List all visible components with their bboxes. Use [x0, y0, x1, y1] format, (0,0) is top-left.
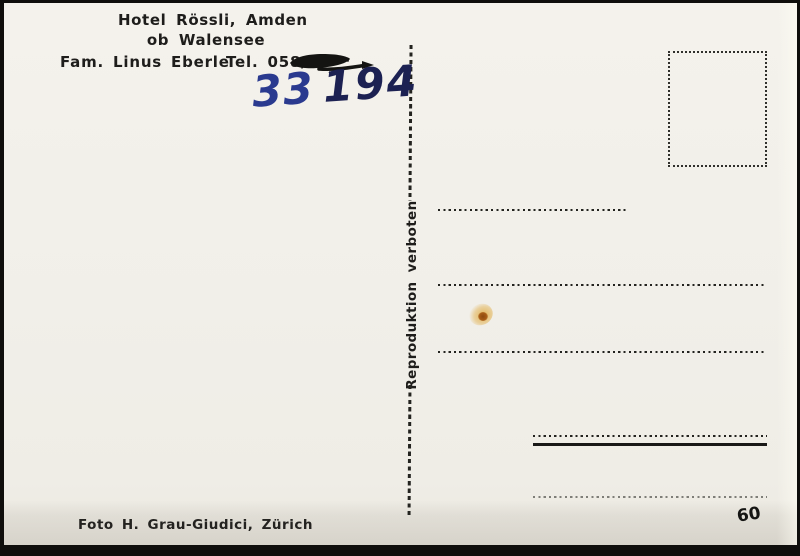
reproduction-forbidden-notice: Reproduktion verboten — [404, 200, 420, 389]
photo-credit: Foto H. Grau-Giudici, Zürich — [78, 517, 313, 533]
address-line-3 — [438, 351, 766, 353]
message-line-dotted-faded — [533, 496, 767, 498]
stamp-box — [668, 51, 767, 167]
family-name: Fam. Linus Eberle — [60, 53, 230, 71]
message-line-solid — [533, 443, 767, 446]
address-line-1 — [438, 209, 628, 211]
card-number: 60 — [736, 503, 763, 526]
address-line-2 — [438, 284, 766, 286]
message-line-dotted — [533, 435, 767, 437]
hotel-location: ob Walensee — [118, 31, 294, 49]
handwritten-digits-blue: 33 — [250, 64, 315, 118]
stain-mark-core — [478, 312, 488, 321]
postcard-scan: Hotel Rössli, Amden ob Walensee Fam. Lin… — [0, 0, 800, 556]
hotel-name: Hotel Rössli, Amden — [118, 11, 294, 29]
handwritten-digits-dark: 194 — [321, 56, 420, 113]
scan-edge-highlight — [777, 3, 797, 545]
